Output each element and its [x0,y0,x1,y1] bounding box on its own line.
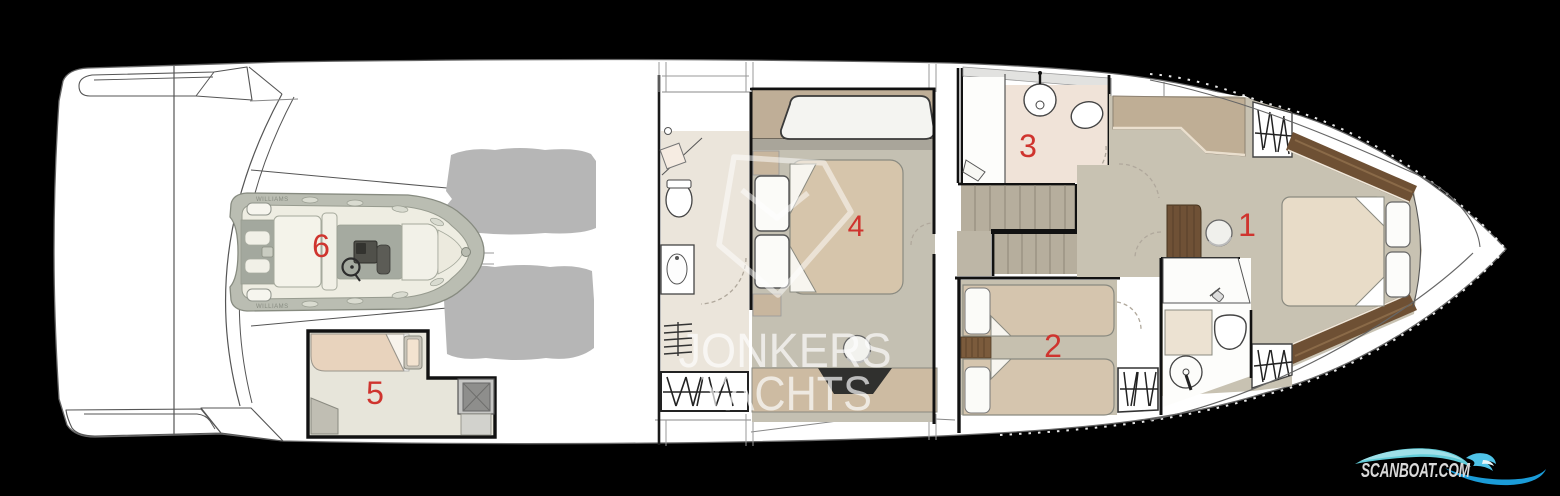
svg-text:1: 1 [1238,207,1256,243]
svg-text:3: 3 [1019,128,1037,164]
svg-text:2: 2 [1044,328,1062,364]
svg-text:SCANBOAT.COM: SCANBOAT.COM [1361,459,1471,481]
svg-text:WILLIAMS: WILLIAMS [256,304,289,310]
svg-text:WILLIAMS: WILLIAMS [256,197,289,203]
svg-text:YACHTS: YACHTS [700,367,872,421]
svg-text:5: 5 [366,375,384,411]
svg-text:6: 6 [312,228,330,264]
